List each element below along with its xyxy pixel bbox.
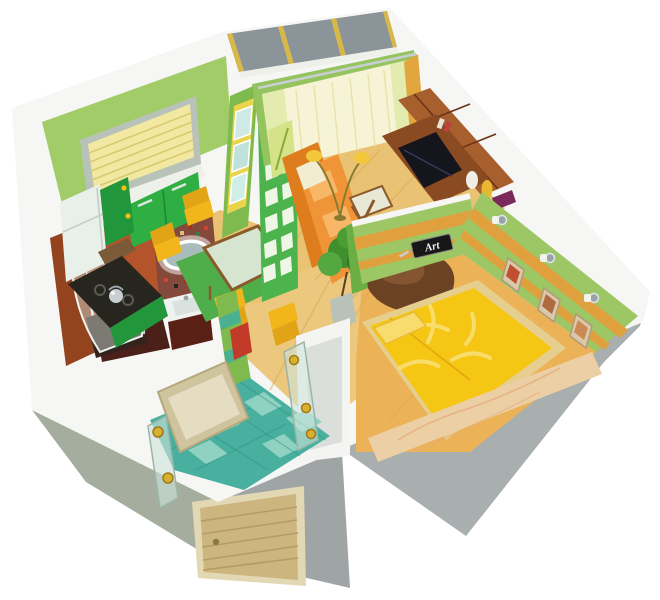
lamp-shade [354,152,370,164]
entrance-door-leaf [200,494,298,580]
wall-spotlight [584,294,599,303]
lamp-shade [306,150,322,162]
floorplan-render: Art [0,0,660,600]
panel-picture [234,106,252,140]
apartment-scene: Art [0,0,660,600]
wall-spotlight [540,254,555,263]
entrance-door [192,486,306,586]
wall-spotlight [492,216,507,225]
faucet [184,296,189,301]
white-vase [466,171,478,189]
door-handle [213,539,219,545]
